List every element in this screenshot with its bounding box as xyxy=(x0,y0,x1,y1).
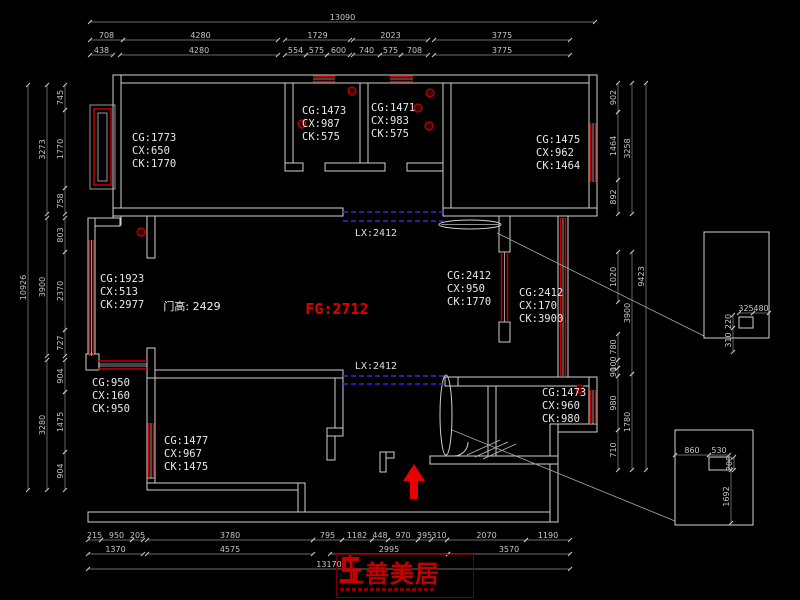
lx-label-top: LX:2412 xyxy=(355,228,397,239)
room-annotation-line: CX:987 xyxy=(302,118,340,130)
dimension: 3775 xyxy=(432,31,572,42)
wall-segment xyxy=(86,354,99,370)
dim-label: 90 xyxy=(609,367,618,377)
dim-label: 708 xyxy=(99,31,114,40)
logo-icon xyxy=(337,555,363,589)
dim-label: 448 xyxy=(372,531,387,540)
dim-label: 1770 xyxy=(56,139,65,159)
room-annotation-line: CK:3900 xyxy=(519,313,563,325)
dimension: 205 xyxy=(130,531,145,542)
dim-label: 950 xyxy=(109,531,124,540)
dim-label: 3775 xyxy=(492,31,512,40)
dimension: 3900 xyxy=(623,250,634,376)
room-annotation-line: CX:950 xyxy=(447,283,485,295)
dimension: 3273 xyxy=(38,83,49,216)
dimension: 13090 xyxy=(88,13,597,24)
dim-label: 892 xyxy=(609,189,618,204)
dimension: 803 xyxy=(56,216,67,254)
dim-label: 530 xyxy=(711,446,726,455)
dimension: 575 xyxy=(304,46,329,57)
dim-label: 554 xyxy=(288,46,303,55)
dimension: 950 xyxy=(99,531,134,542)
dimension: 3900 xyxy=(38,216,49,358)
company-logo: 上善美居 xyxy=(336,554,474,598)
floor-height-label: FG:2712 xyxy=(305,300,368,318)
lx-label-bottom: LX:2412 xyxy=(355,361,397,372)
wall-segment xyxy=(147,483,305,490)
room-annotation-line: CX:960 xyxy=(542,400,580,412)
dimension: 708 xyxy=(399,46,430,57)
dimension: 4280 xyxy=(118,46,280,57)
room-annotation-line: CG:1471 xyxy=(371,102,415,114)
dim-label: 1780 xyxy=(623,412,632,432)
dim-label: 3570 xyxy=(499,545,519,554)
wall-segment xyxy=(407,163,443,171)
dim-label: 215 xyxy=(87,531,102,540)
room-annotation-line: CK:1770 xyxy=(132,158,176,170)
dim-label: 2995 xyxy=(379,545,399,554)
room-annotation-line: CX:983 xyxy=(371,115,409,127)
dim-label: 3900 xyxy=(38,277,47,297)
dimension: 1770 xyxy=(56,108,67,190)
dim-label: 980 xyxy=(609,395,618,410)
right-wall-window xyxy=(591,123,596,182)
wall-segment xyxy=(335,378,343,428)
wall-segment xyxy=(147,216,155,258)
dimension: 2023 xyxy=(351,31,430,42)
wall-segment xyxy=(327,428,343,436)
room-annotation-line: CG:1473 xyxy=(542,387,586,399)
room-annotation-line: CG:2412 xyxy=(519,287,563,299)
wall-segment xyxy=(380,452,386,472)
dim-label: 758 xyxy=(56,193,65,208)
room-annotation-line: CK:1475 xyxy=(164,461,208,473)
dimension: 980 xyxy=(609,374,620,432)
wall-segment xyxy=(458,377,597,386)
dimension: 1780 xyxy=(623,372,634,472)
dim-label: 3775 xyxy=(492,46,512,55)
dimension: 4280 xyxy=(121,31,280,42)
dim-label: 395 xyxy=(417,531,432,540)
dimension: 2370 xyxy=(56,250,67,332)
dim-label: 575 xyxy=(309,46,324,55)
dim-label: 970 xyxy=(395,531,410,540)
kitchen-window xyxy=(591,390,596,424)
dimension: 904 xyxy=(56,358,67,394)
dim-label: 1464 xyxy=(609,136,618,156)
wall-segment xyxy=(113,75,121,225)
bottom-left-window xyxy=(149,423,154,478)
wall-segment xyxy=(285,163,303,171)
dimension: 710 xyxy=(609,428,620,472)
dimension: 970 xyxy=(386,531,420,542)
dim-label: 325 xyxy=(738,304,753,313)
labels-layer: LX:2412 LX:2412 FG:2712 门高: 2429 xyxy=(163,228,397,372)
dimension: 480 xyxy=(751,304,771,315)
room-annotation-line: CK:575 xyxy=(302,131,340,143)
dimension: 3780 xyxy=(145,531,315,542)
detail-box-bottom xyxy=(675,430,753,525)
dim-label: 2070 xyxy=(476,531,496,540)
dimension: 860 xyxy=(673,446,711,457)
bay-window xyxy=(90,105,115,189)
dim-label: 205 xyxy=(130,531,145,540)
dim-label: 795 xyxy=(320,531,335,540)
room-annotation-line: CG:1773 xyxy=(132,132,176,144)
dim-label: 4575 xyxy=(220,545,240,554)
room-annotation-line: CG:2412 xyxy=(447,270,491,282)
dimension: 1370 xyxy=(86,545,145,556)
dimension: 1464 xyxy=(609,110,620,182)
dimension: 575 xyxy=(378,46,403,57)
room-annotation-line: CX:967 xyxy=(164,448,202,460)
room-annotation-line: CK:1770 xyxy=(447,296,491,308)
dimension: 310 xyxy=(724,326,735,354)
room-annotation-line: CK:575 xyxy=(371,128,409,140)
room-annotation-line: CG:1475 xyxy=(536,134,580,146)
door-leaf xyxy=(440,375,452,455)
dim-label: 220 xyxy=(724,314,733,329)
dim-label: 310 xyxy=(724,332,733,347)
dimension: 902 xyxy=(609,81,620,114)
room-annotation-line: CK:1464 xyxy=(536,160,580,172)
room-annotation-line: CG:1477 xyxy=(164,435,208,447)
wall-segment xyxy=(443,83,451,216)
dimension: 1020 xyxy=(609,250,620,304)
dimension: 200 xyxy=(725,455,736,472)
room-annotation-line: CX:513 xyxy=(100,286,138,298)
dimension: 892 xyxy=(609,178,620,216)
dim-label: 860 xyxy=(684,446,699,455)
wall-segment xyxy=(430,456,558,464)
dimension: 10926 xyxy=(19,83,30,492)
wall-segment xyxy=(298,483,305,515)
room-annotation-line: CK:950 xyxy=(92,403,130,415)
dimension: 904 xyxy=(56,450,67,492)
dimension: 1729 xyxy=(283,31,352,42)
dim-label: 708 xyxy=(407,46,422,55)
dim-label: 3900 xyxy=(623,303,632,323)
dimension: 530 xyxy=(707,446,731,457)
dimension: 3280 xyxy=(38,358,49,492)
wall-segment xyxy=(327,436,335,460)
dim-label: 310 xyxy=(431,531,446,540)
dim-label: 2370 xyxy=(56,281,65,301)
dim-label: 904 xyxy=(56,463,65,478)
wall-segment xyxy=(113,75,597,83)
dimension: 438 xyxy=(88,46,115,57)
dim-label: 2023 xyxy=(380,31,400,40)
detail-box-top-inner xyxy=(739,317,753,328)
wall-segment xyxy=(285,83,293,163)
interior-window xyxy=(502,252,508,322)
wall-segment xyxy=(155,370,343,378)
dim-label: 1692 xyxy=(722,486,731,506)
dim-label: 745 xyxy=(56,90,65,105)
wall-segment xyxy=(499,322,510,342)
dimension: 600 xyxy=(325,46,352,57)
pipe-symbol xyxy=(137,228,145,236)
room-annotation-line: CX:962 xyxy=(536,147,574,159)
dimension: 3775 xyxy=(432,46,572,57)
top-wall-window xyxy=(313,77,335,82)
dim-label: 727 xyxy=(56,335,65,350)
dim-label: 9423 xyxy=(637,266,646,286)
room-annotation-line: CX:170 xyxy=(519,300,557,312)
pipe-symbol xyxy=(425,122,433,130)
dimension: 1182 xyxy=(340,531,374,542)
dimension: 13170 xyxy=(86,560,572,571)
leader-line xyxy=(452,430,675,521)
dim-label: 600 xyxy=(331,46,346,55)
dim-label: 13090 xyxy=(330,13,355,22)
dim-label: 904 xyxy=(56,368,65,383)
dim-label: 710 xyxy=(609,442,618,457)
dimension: 745 xyxy=(56,83,67,112)
wall-segment xyxy=(325,163,385,171)
dim-label: 1190 xyxy=(538,531,558,540)
wall-segment xyxy=(113,208,343,216)
dim-label: 10926 xyxy=(19,275,28,300)
door-swing-arc xyxy=(454,442,468,456)
dimension: 708 xyxy=(88,31,125,42)
small-window xyxy=(98,361,147,369)
door-height-label: 门高: 2429 xyxy=(163,299,220,313)
pipe-symbol xyxy=(426,89,434,97)
floor-plan-page: LX:2412 LX:2412 FG:2712 门高: 2429 1309070… xyxy=(0,0,800,600)
dim-label: 1182 xyxy=(347,531,367,540)
wall-segment xyxy=(88,512,558,522)
dim-label: 803 xyxy=(56,227,65,242)
dim-label: 780 xyxy=(609,339,618,354)
dim-label: 740 xyxy=(359,46,374,55)
entry-arrow-icon xyxy=(403,464,425,499)
dimension: 795 xyxy=(311,531,344,542)
dim-label: 1729 xyxy=(307,31,327,40)
dimension: 1692 xyxy=(722,468,733,525)
detail-box-top xyxy=(704,232,769,338)
room-annotation-line: CX:160 xyxy=(92,390,130,402)
dim-label: 4280 xyxy=(189,46,209,55)
dimension: 758 xyxy=(56,186,67,216)
dim-label: 3280 xyxy=(38,415,47,435)
wall-segment xyxy=(147,348,155,380)
wall-segment xyxy=(360,83,368,163)
dimension: 2070 xyxy=(445,531,528,542)
room-annotation-line: CG:950 xyxy=(92,377,130,389)
dim-label: 438 xyxy=(94,46,109,55)
room-annotation-line: CK:980 xyxy=(542,413,580,425)
wall-segment xyxy=(443,208,597,216)
floor-plan-canvas: LX:2412 LX:2412 FG:2712 门高: 2429 1309070… xyxy=(0,0,800,600)
dim-label: 3273 xyxy=(38,139,47,159)
dim-label: 4280 xyxy=(190,31,210,40)
top-wall-window xyxy=(390,77,413,82)
left-wall-window xyxy=(90,240,94,356)
dim-label: 1020 xyxy=(609,267,618,287)
dim-label: 902 xyxy=(609,90,618,105)
dimension: 727 xyxy=(56,328,67,358)
dimension: 554 xyxy=(283,46,308,57)
dimension: 9423 xyxy=(637,81,648,472)
dimension: 1190 xyxy=(524,531,572,542)
pipe-symbol xyxy=(348,87,356,95)
room-annotation-line: CK:2977 xyxy=(100,299,144,311)
dim-label: 3258 xyxy=(623,138,632,158)
dimension: 4575 xyxy=(145,545,315,556)
dim-label: 1370 xyxy=(105,545,125,554)
dim-label: 575 xyxy=(383,46,398,55)
dimension: 3258 xyxy=(623,81,634,216)
room-annotation-line: CG:1473 xyxy=(302,105,346,117)
dim-label: 1475 xyxy=(56,412,65,432)
room-annotation-line: CX:650 xyxy=(132,145,170,157)
wall-segment xyxy=(499,216,510,252)
room-annotation-line: CG:1923 xyxy=(100,273,144,285)
dim-label: 3780 xyxy=(220,531,240,540)
dimension: 740 xyxy=(351,46,382,57)
dim-label: 480 xyxy=(753,304,768,313)
dimension: 1475 xyxy=(56,390,67,454)
wall-segment xyxy=(445,377,458,386)
